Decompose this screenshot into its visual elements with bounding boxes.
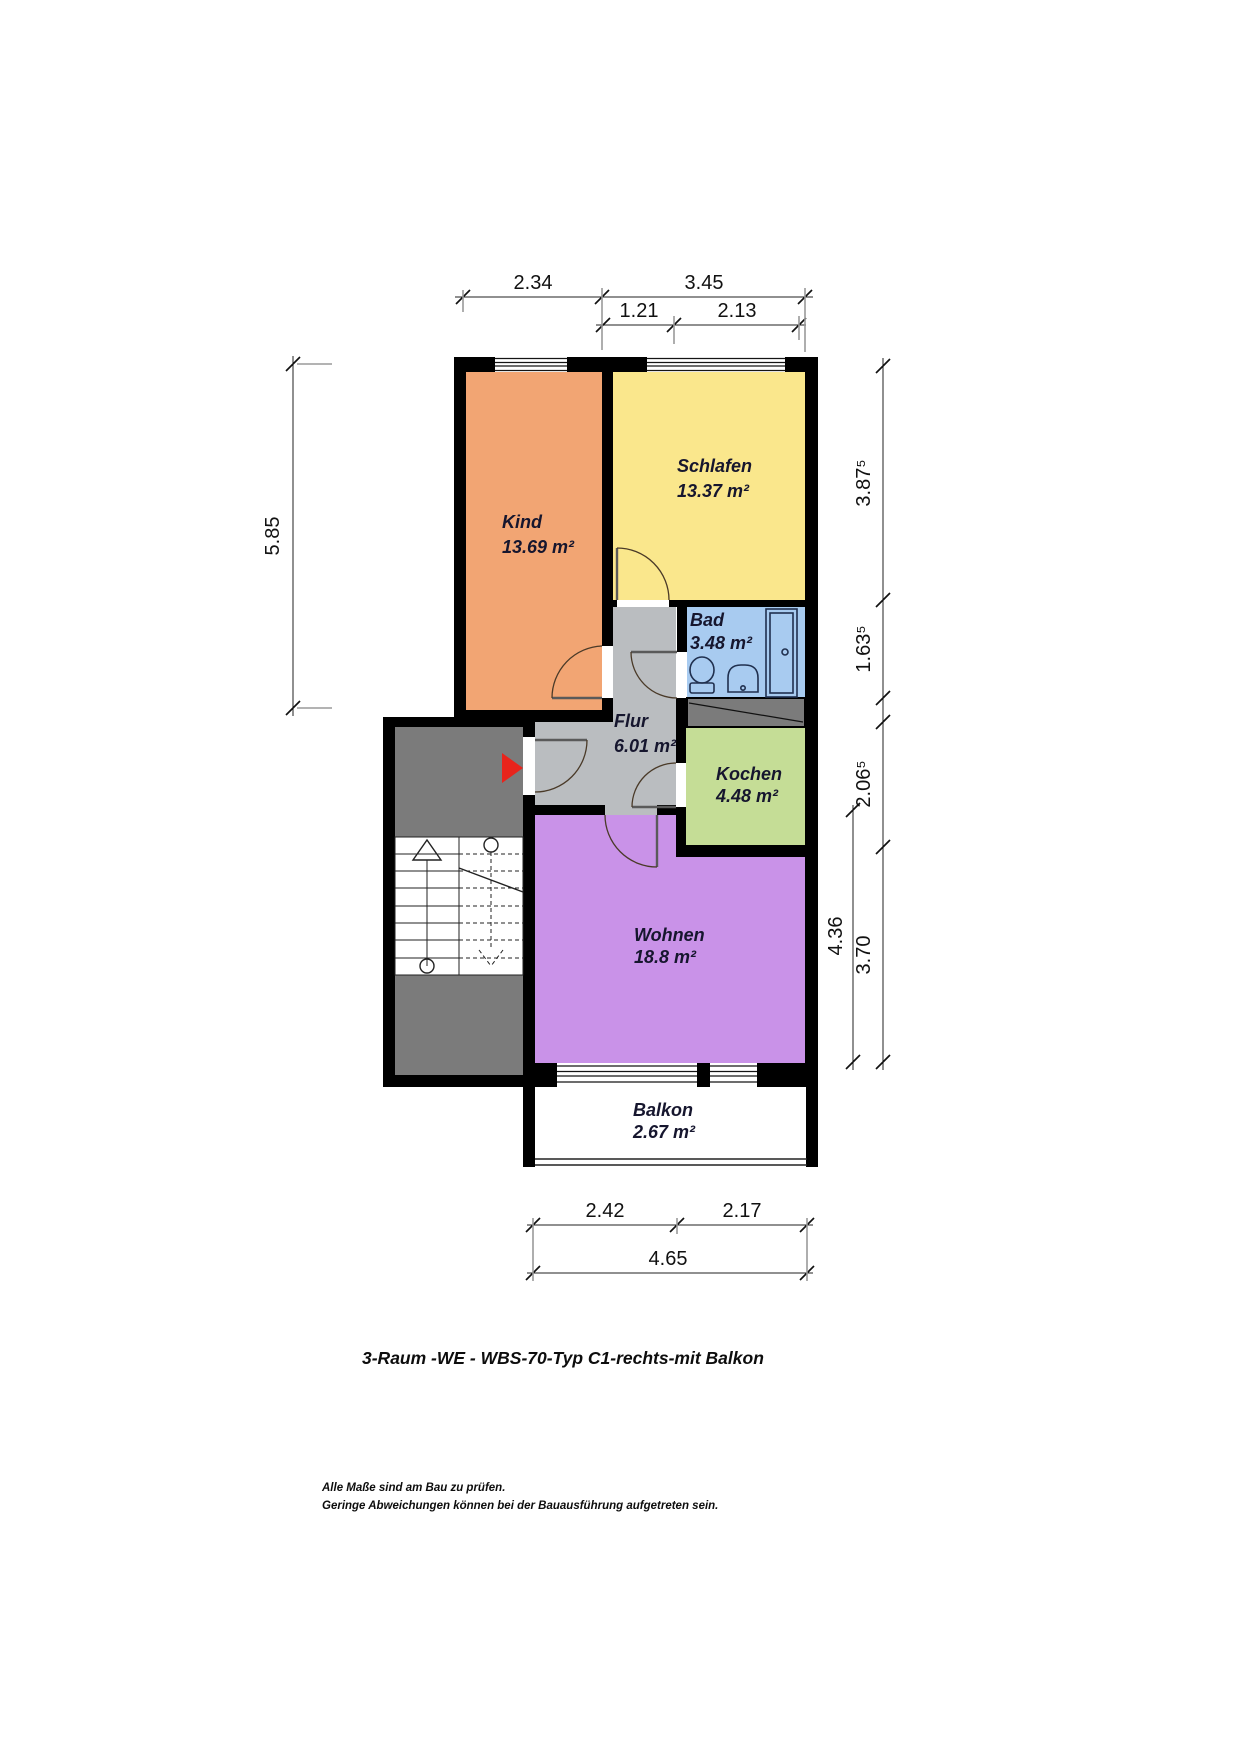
- wall-stairblock-left: [383, 717, 395, 1087]
- footer-note-2: Geringe Abweichungen können bei der Baua…: [322, 1500, 718, 1512]
- wall-flur-wohnen-left: [535, 805, 605, 815]
- wall-kochen-bottom: [676, 845, 818, 857]
- wall-stairblock-bottom: [383, 1075, 535, 1087]
- dim-left: 5.85: [262, 517, 284, 556]
- window-wohnen-balkon: [557, 1063, 697, 1087]
- dim-bottom-total: 4.65: [649, 1248, 688, 1270]
- wall-stairblock-top: [383, 717, 535, 727]
- balkon-door: [710, 1063, 757, 1087]
- floorplan-svg: 2.34 3.45 1.21 2.13 5.85 3.87⁵ 1.63⁵ 2.0…: [0, 0, 1240, 1754]
- label-kind-area: 13.69 m²: [502, 537, 575, 557]
- wall-kind-schlafen-upper: [602, 372, 613, 646]
- wall-bottom-mid-segment: [697, 1063, 710, 1087]
- wall-bad-left: [677, 607, 687, 652]
- dim-top-inner-2: 2.13: [718, 300, 757, 322]
- dim-top-2: 3.45: [685, 272, 724, 294]
- footer-note-1: Alle Maße sind am Bau zu prüfen.: [321, 1482, 505, 1494]
- dim-top-inner-1: 1.21: [620, 300, 659, 322]
- staircase: [395, 837, 523, 975]
- dim-right-4: 3.70: [853, 936, 875, 975]
- label-kind-name: Kind: [502, 512, 543, 532]
- label-wohnen-name: Wohnen: [634, 925, 705, 945]
- stairs-end-circle: [484, 838, 498, 852]
- label-balkon-area: 2.67 m²: [632, 1122, 696, 1142]
- wall-kochen-left-upper: [676, 698, 686, 763]
- wall-schlafen-bottom-stub: [613, 600, 617, 607]
- wall-bottom-right-segment: [757, 1063, 818, 1087]
- wall-stairblock-right-lower: [523, 795, 535, 1087]
- dim-right-3: 2.06⁵: [853, 760, 875, 807]
- label-kochen-name: Kochen: [716, 764, 782, 784]
- label-schlafen-area: 13.37 m²: [677, 481, 750, 501]
- label-balkon-name: Balkon: [633, 1100, 693, 1120]
- window-kind: [495, 357, 567, 372]
- dim-bottom-2: 2.17: [723, 1200, 762, 1222]
- stair-landing: [395, 727, 523, 837]
- wall-stairblock-right-upper: [523, 727, 535, 737]
- window-schlafen: [647, 357, 785, 372]
- dim-right-1: 3.87⁵: [853, 459, 875, 506]
- dim-top-1: 2.34: [514, 272, 553, 294]
- dim-bottom-1: 2.42: [586, 1200, 625, 1222]
- label-bad-area: 3.48 m²: [690, 633, 753, 653]
- label-flur-name: Flur: [614, 711, 649, 731]
- label-bad-name: Bad: [690, 610, 725, 630]
- plan-title: 3-Raum -WE - WBS-70-Typ C1-rechts-mit Ba…: [362, 1348, 764, 1368]
- dim-right-inner: 4.36: [825, 917, 847, 956]
- balkon-railing: [535, 1159, 807, 1165]
- label-flur-area: 6.01 m²: [614, 736, 677, 756]
- label-schlafen-name: Schlafen: [677, 456, 752, 476]
- stair-lower-landing: [395, 975, 523, 1075]
- wall-balkon-left: [523, 1063, 535, 1167]
- wall-right-exterior: [805, 357, 818, 1087]
- stairs-up-arrow-icon: [413, 840, 441, 860]
- label-wohnen-area: 18.8 m²: [634, 947, 697, 967]
- label-kochen-area: 4.48 m²: [715, 786, 779, 806]
- wall-balkon-right: [806, 1087, 818, 1167]
- wall-left-exterior: [454, 357, 466, 722]
- floorplan-page: 2.34 3.45 1.21 2.13 5.85 3.87⁵ 1.63⁵ 2.0…: [0, 0, 1240, 1754]
- dim-right-2: 1.63⁵: [853, 625, 875, 672]
- wall-schlafen-bad-top: [669, 600, 805, 607]
